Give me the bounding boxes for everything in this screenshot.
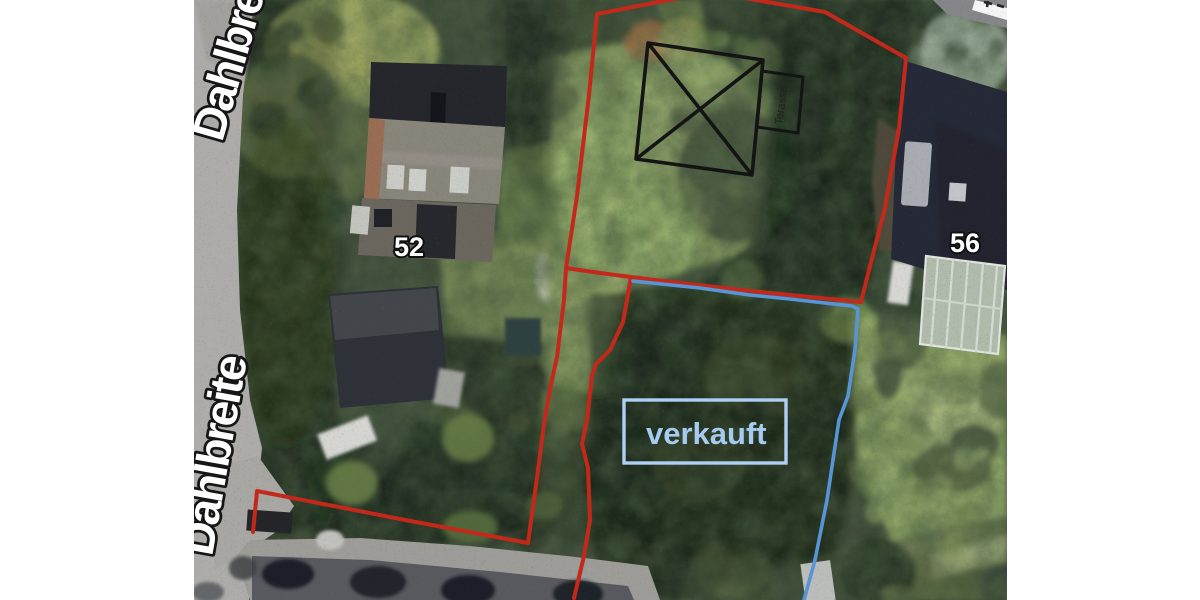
svg-text:verkauft: verkauft — [646, 416, 767, 451]
svg-text:52: 52 — [394, 232, 424, 262]
svg-text:56: 56 — [950, 228, 980, 258]
